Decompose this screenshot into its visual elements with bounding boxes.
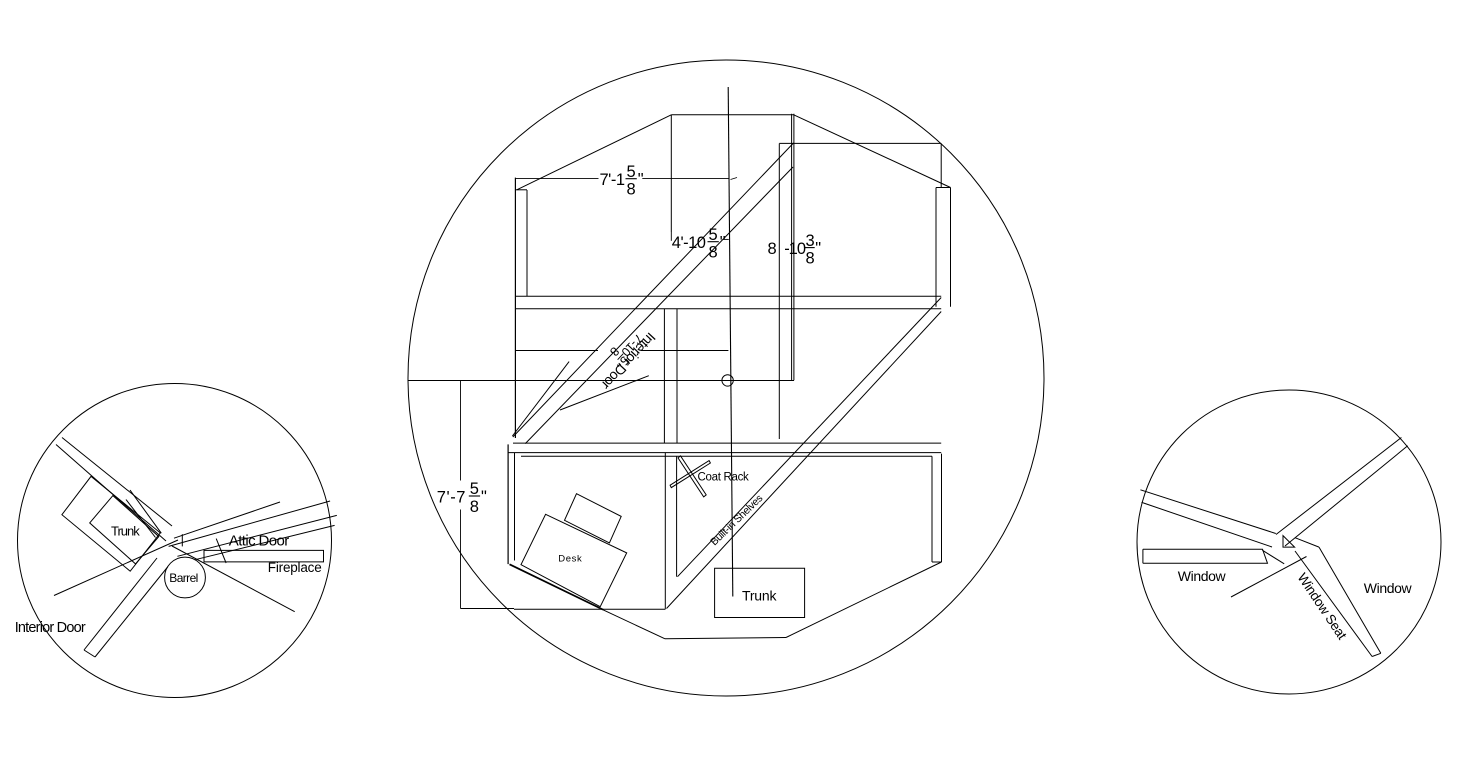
svg-text:": " — [815, 240, 821, 258]
svg-text:Trunk: Trunk — [742, 588, 777, 604]
svg-text:Trunk: Trunk — [111, 523, 140, 538]
svg-text:Window: Window — [1178, 568, 1227, 584]
svg-text:8: 8 — [627, 181, 636, 199]
svg-text:": " — [481, 488, 487, 506]
svg-text:8: 8 — [806, 250, 815, 268]
svg-text:4'-10: 4'-10 — [672, 234, 706, 252]
svg-text:": " — [638, 171, 644, 189]
svg-text:-10: -10 — [784, 240, 806, 258]
svg-text:Coat Rack: Coat Rack — [698, 472, 750, 484]
svg-text:7'-7: 7'-7 — [437, 488, 466, 506]
svg-text:8: 8 — [768, 240, 777, 258]
svg-text:Desk: Desk — [558, 553, 582, 564]
svg-text:7'-1: 7'-1 — [600, 171, 625, 189]
svg-text:Interior Door: Interior Door — [15, 620, 86, 636]
svg-text:Window: Window — [1364, 580, 1413, 596]
svg-text:Barrel: Barrel — [169, 571, 197, 585]
svg-text:8: 8 — [470, 498, 479, 516]
svg-text:Fireplace: Fireplace — [268, 560, 322, 575]
svg-text:Attic Door: Attic Door — [229, 532, 289, 549]
